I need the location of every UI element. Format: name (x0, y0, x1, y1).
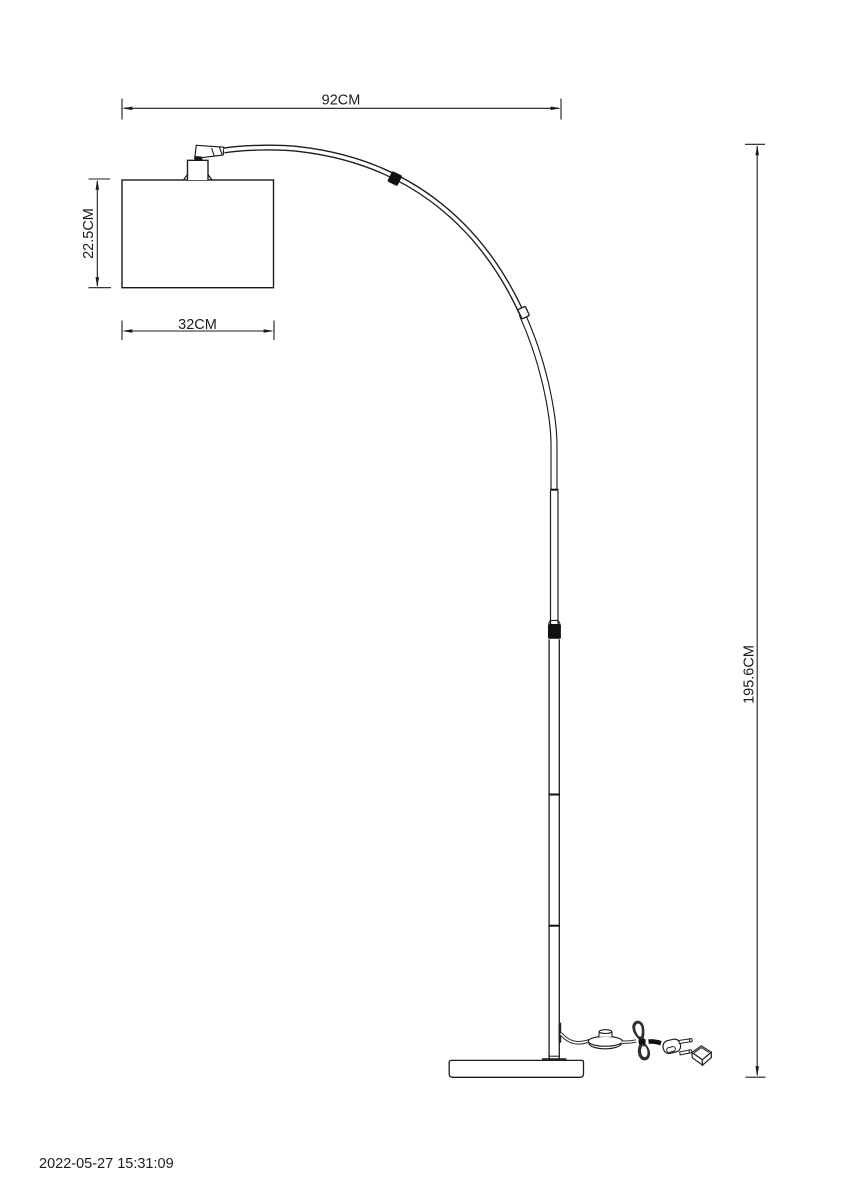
svg-text:92CM: 92CM (322, 93, 361, 109)
svg-text:22.5CM: 22.5CM (81, 208, 97, 259)
svg-text:2022-05-27 15:31:09: 2022-05-27 15:31:09 (39, 1156, 174, 1172)
svg-text:195.6CM: 195.6CM (742, 645, 758, 704)
svg-text:32CM: 32CM (178, 317, 217, 333)
